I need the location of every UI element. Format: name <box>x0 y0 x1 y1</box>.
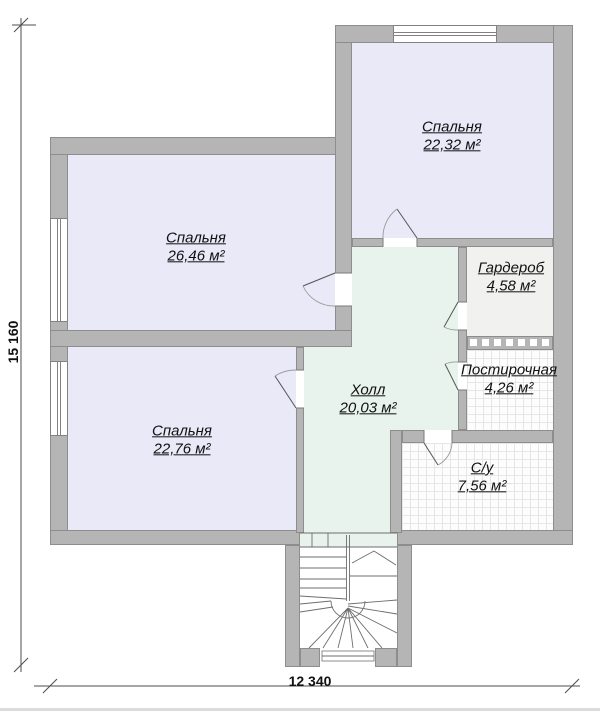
wall <box>50 330 352 347</box>
room-area: 4,58 м² <box>478 277 544 295</box>
wall <box>296 347 304 533</box>
room-area: 22,32 м² <box>422 136 482 154</box>
room-floor-hall <box>300 533 397 547</box>
floor-plan: Спальня 22,32 м² Спальня 26,46 м² Спальн… <box>0 0 600 713</box>
wall <box>50 137 352 155</box>
window <box>50 218 68 322</box>
wall <box>458 247 467 430</box>
room-area: 4,26 м² <box>461 379 557 397</box>
room-name: Холл <box>340 381 397 399</box>
wall-stairwell <box>285 545 300 667</box>
room-label-bedroom-middle: Спальня 26,46 м² <box>166 229 226 264</box>
room-floor-hall <box>352 247 458 347</box>
room-name: С/у <box>458 459 507 477</box>
wall <box>553 25 573 545</box>
room-label-laundry: Постирочная 4,26 м² <box>461 361 557 396</box>
window <box>50 361 68 436</box>
room-area: 26,46 м² <box>166 247 226 265</box>
room-name: Постирочная <box>461 361 557 379</box>
wall <box>352 238 553 247</box>
room-area: 7,56 м² <box>458 477 507 495</box>
wall-stairwell <box>397 545 412 667</box>
staircase <box>300 533 397 661</box>
room-label-wardrobe: Гардероб 4,58 м² <box>478 259 544 294</box>
room-label-bedroom-top: Спальня 22,32 м² <box>422 118 482 153</box>
wall <box>50 530 300 545</box>
window <box>393 25 497 43</box>
room-floor-hall <box>304 430 390 533</box>
wall <box>390 430 402 533</box>
room-name: Спальня <box>422 118 482 136</box>
wall <box>397 530 573 545</box>
room-area: 22,76 м² <box>152 440 212 458</box>
wall-shelf-partition <box>467 336 553 350</box>
room-label-bathroom: С/у 7,56 м² <box>458 459 507 494</box>
wall <box>402 430 553 443</box>
room-label-hall: Холл 20,03 м² <box>340 381 397 416</box>
wall <box>335 25 352 347</box>
room-name: Спальня <box>166 229 226 247</box>
dimension-label-width: 12 340 <box>289 673 332 689</box>
room-name: Гардероб <box>478 259 544 277</box>
wall-stairwell <box>375 648 397 667</box>
wall-stairwell <box>300 648 320 667</box>
room-area: 20,03 м² <box>340 399 397 417</box>
room-label-bedroom-bottom: Спальня 22,76 м² <box>152 422 212 457</box>
dimension-label-height: 15 160 <box>5 321 21 364</box>
room-name: Спальня <box>152 422 212 440</box>
page-edge-strip <box>0 708 600 711</box>
